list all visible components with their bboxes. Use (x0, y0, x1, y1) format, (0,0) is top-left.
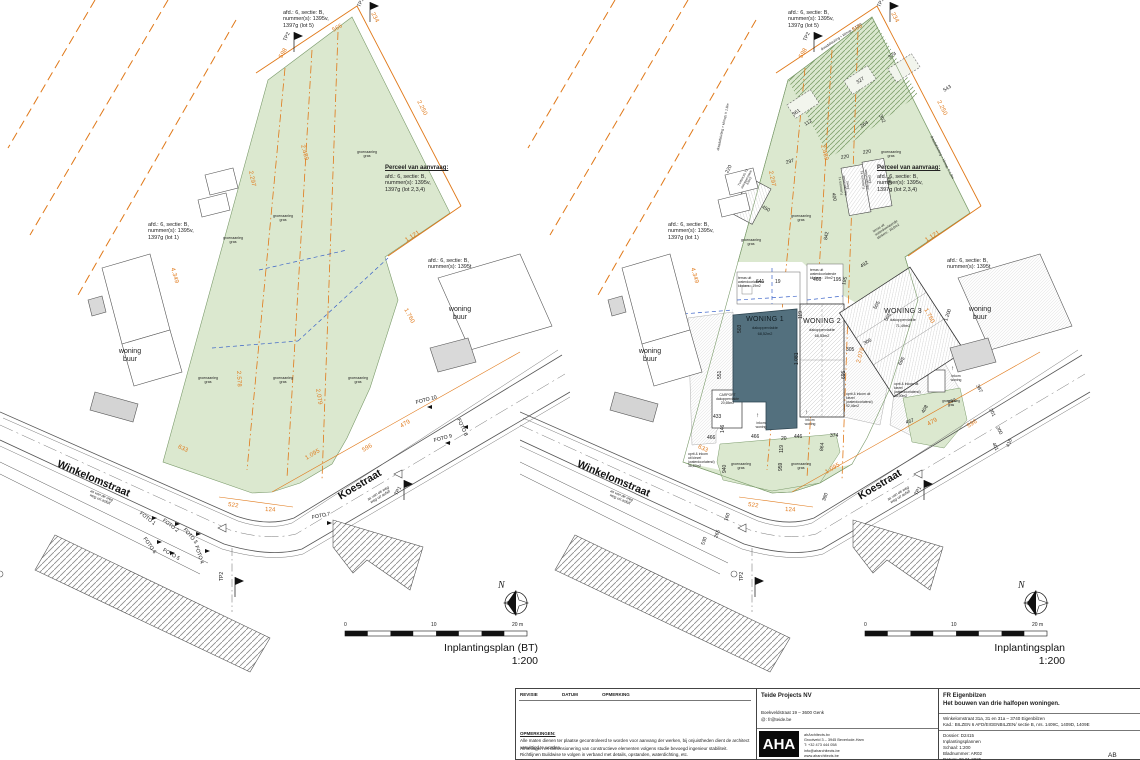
project-kadaster: Kad.: BILZEN 6 AFD/EIGENBILZEN/ sectie B… (943, 722, 1090, 729)
dim-label: 959 (778, 463, 784, 471)
woning-buur-left: woning buur (628, 348, 672, 365)
divider (519, 700, 751, 701)
woning2-label: WONING 2 (800, 318, 844, 326)
inkom-note: inkom woning (948, 374, 964, 382)
groen-label: groenaanleg gras (786, 214, 816, 222)
oprit-note: oprit & inkom uit kiezel (waterdoorlaten… (688, 452, 715, 468)
page-code: AB (1108, 751, 1117, 760)
inkom-note: inkom woning (753, 421, 769, 429)
dim-label: 551 (717, 371, 723, 379)
inkom-note: inkom woning (802, 418, 818, 426)
builder-email: @: fr@teide.be (761, 717, 791, 724)
scale-bar (345, 631, 527, 636)
divider (757, 728, 938, 729)
dim-label: 466 (751, 434, 759, 440)
site-geometry-bt (0, 0, 570, 690)
dim-label: 433 (713, 414, 721, 420)
dim-label: 522 (748, 502, 759, 509)
tp2-marker-label: TP2 (739, 572, 745, 581)
dim-label: 641 (756, 279, 764, 285)
architect-line: www.aharchitects.be (804, 754, 839, 760)
existing-paving (555, 520, 943, 672)
groen-label: groenaanleg gras (352, 150, 382, 158)
perceel-title: Perceel van aanvraag: (385, 165, 448, 172)
entrance-arrow-icon: ↑ (756, 413, 759, 420)
dim-label: 20 (781, 436, 787, 442)
dim-label: 940 (722, 465, 728, 473)
dim-label: 374 (830, 433, 838, 439)
woning-buur-right: woning buur (958, 306, 1002, 323)
lot1-label: afd.: 6, sectie: B, nummer(s): 1395v, 13… (148, 222, 194, 241)
scale-tick: 10 (431, 622, 437, 628)
dim-label: 864 (819, 442, 826, 451)
divider (939, 730, 1140, 731)
entrance-arrow-icon: ↑ (805, 410, 808, 417)
lot5-label: afd.: 6, sectie: B, nummer(s): 1395v, 13… (788, 10, 834, 29)
perceel-body: afd.: 6, sectie: B, nummer(s): 1395v, 13… (385, 174, 431, 193)
lot1395t-label: afd.: 6, sectie: B, nummer(s): 1395t (947, 258, 990, 271)
dim-label: 695 (841, 371, 847, 379)
divider (938, 689, 939, 759)
groen-label: groenaanleg gras (343, 376, 373, 384)
lot1395t-label: afd.: 6, sectie: B, nummer(s): 1395t (428, 258, 471, 271)
dim-label: 146 (720, 425, 726, 433)
woning1-area: 68,52m2 (734, 332, 796, 336)
opmerkingen-title: OPMERKINGEN: (520, 731, 556, 738)
woning-buur-left: woning buur (108, 348, 152, 365)
builder-name: Teide Projects NV (761, 692, 812, 701)
plan-scale: 1:200 (368, 655, 538, 667)
dim-label: 466 (707, 435, 715, 441)
oprit-note: oprit & inkom uit kiezel (waterdoorlaten… (894, 382, 921, 398)
dim-label: 460 (885, 176, 892, 185)
scale-tick: 0 (344, 622, 347, 628)
woning1-sub: dakoppervlakte (734, 326, 796, 330)
plan-caption: Inplantingsplan (BT) (368, 642, 538, 654)
scale-tick: 20 m (1032, 622, 1043, 628)
groen-label: groenaanleg gras (268, 376, 298, 384)
tp2-marker-label: TP2 (219, 572, 225, 581)
scale-bar (865, 631, 1047, 636)
builder-address: Boekveldstraat 19 – 3600 Genk (761, 710, 824, 717)
oprit-note: oprit & inkom uit kiezel (waterdoorlaten… (846, 392, 873, 408)
groen-label: groenaanleg gras (736, 238, 766, 246)
groen-label: groenaanleg gras (268, 214, 298, 222)
panel-inplantingsplan-bt: afd.: 6, sectie: B, nummer(s): 1395v, 13… (0, 0, 570, 690)
datum-header: DATUM (562, 692, 578, 699)
groen-label: groenaanleg gras (218, 236, 248, 244)
project-title: Het bouwen van drie halfopen woningen. (943, 700, 1060, 709)
dim-label: 400 (830, 192, 837, 201)
dim-label: 1.081 (794, 352, 800, 365)
site-geometry-new (520, 0, 1140, 690)
dim-label: 195 (833, 277, 841, 283)
woning-buur-right: woning buur (438, 306, 482, 323)
plan-caption: Inplantingsplan (895, 642, 1065, 654)
plan-scale: 1:200 (895, 655, 1065, 667)
site-plan-sheet: { "C": { "lot5": "afd.: 6, sectie: B,\nn… (0, 0, 1140, 760)
dim-label: 119 (779, 445, 785, 453)
woning2-area: 68,53m2 (800, 334, 844, 338)
woning1-label: WONING 1 (734, 316, 796, 324)
rev-header: REVISIE (520, 692, 538, 699)
woning3-sub: dakoppervlakte (872, 318, 934, 322)
groen-label: groenaanleg gras (876, 150, 906, 158)
scale-tick: 10 (951, 622, 957, 628)
dim-label: 466 (813, 277, 821, 283)
woning3-area: 71,49m2 (872, 324, 934, 328)
perceel-title: Perceel van aanvraag: (877, 165, 940, 172)
dim-label: 522 (228, 502, 239, 509)
existing-paving (35, 520, 423, 672)
dim-label: 305 (846, 347, 854, 353)
panel-inplantingsplan-nieuw: afd.: 6, sectie: B, nummer(s): 1395v, 13… (520, 0, 1140, 690)
north-arrow-icon (1024, 590, 1048, 616)
architect-line: T: +32 473 444 058 (804, 743, 837, 749)
divider (756, 689, 757, 759)
lot1-label: afd.: 6, sectie: B, nummer(s): 1395v, 13… (668, 222, 714, 241)
woning2-sub: dakoppervlakte (800, 328, 844, 332)
cadastral-boundary-lines (528, 0, 756, 295)
opmerking-header: OPMERKING (602, 692, 630, 699)
architect-logo: AHA (759, 731, 799, 757)
opmerking-line: Richtlijnen Buildwise te volgen in verba… (520, 752, 752, 760)
north-label: N (1018, 580, 1025, 591)
dim-label: 124 (785, 507, 796, 513)
groen-label: groenaanleg gras (786, 462, 816, 470)
dim-label: 2.578 (235, 371, 242, 387)
north-label: N (498, 580, 505, 591)
dim-label: 119 (798, 311, 804, 319)
dim-label: 19 (775, 279, 781, 285)
lot5-label: afd.: 6, sectie: B, nummer(s): 1395v, 13… (283, 10, 329, 29)
dim-label: 446 (794, 434, 802, 440)
scale-tick: 0 (864, 622, 867, 628)
groen-label: groenaanleg gras (726, 462, 756, 470)
dim-label: 503 (737, 325, 743, 333)
title-block: REVISIE DATUM OPMERKING OPMERKINGEN: All… (515, 688, 1140, 760)
entrance-arrow-icon: ↑ (951, 366, 954, 373)
cadastral-boundary-lines (8, 0, 236, 295)
carport-label: CARPORT dakoppervlakte 20,65m2 (713, 393, 742, 405)
perceel-body: afd.: 6, sectie: B, nummer(s): 1395v, 13… (877, 174, 923, 193)
dim-label: 124 (265, 507, 276, 513)
groen-label: groenaanleg gras (193, 376, 223, 384)
divider (939, 713, 1140, 714)
